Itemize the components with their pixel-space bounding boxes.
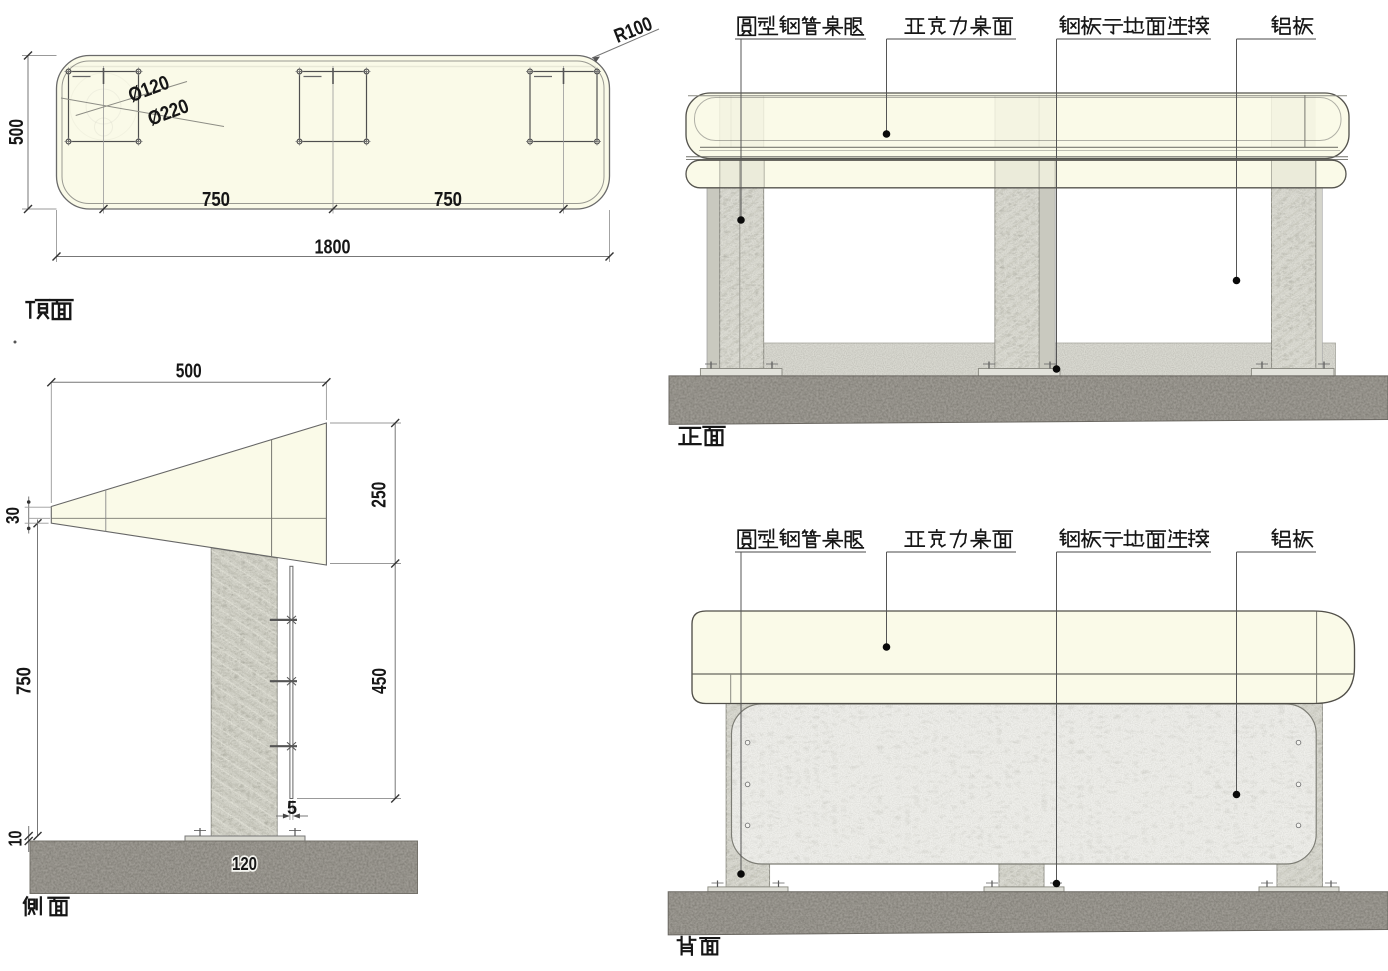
svg-text:750: 750 <box>202 189 230 211</box>
svg-text:500: 500 <box>6 119 28 145</box>
svg-text:250: 250 <box>369 482 391 508</box>
svg-text:5: 5 <box>287 798 297 818</box>
svg-text:450: 450 <box>369 668 391 694</box>
svg-text:750: 750 <box>14 667 36 695</box>
svg-text:R100: R100 <box>611 13 655 48</box>
svg-text:120: 120 <box>232 854 257 874</box>
svg-text:500: 500 <box>176 361 202 383</box>
svg-text:750: 750 <box>434 189 462 211</box>
svg-text:10: 10 <box>6 831 26 847</box>
svg-text:30: 30 <box>3 507 23 524</box>
svg-text:1800: 1800 <box>315 237 351 259</box>
